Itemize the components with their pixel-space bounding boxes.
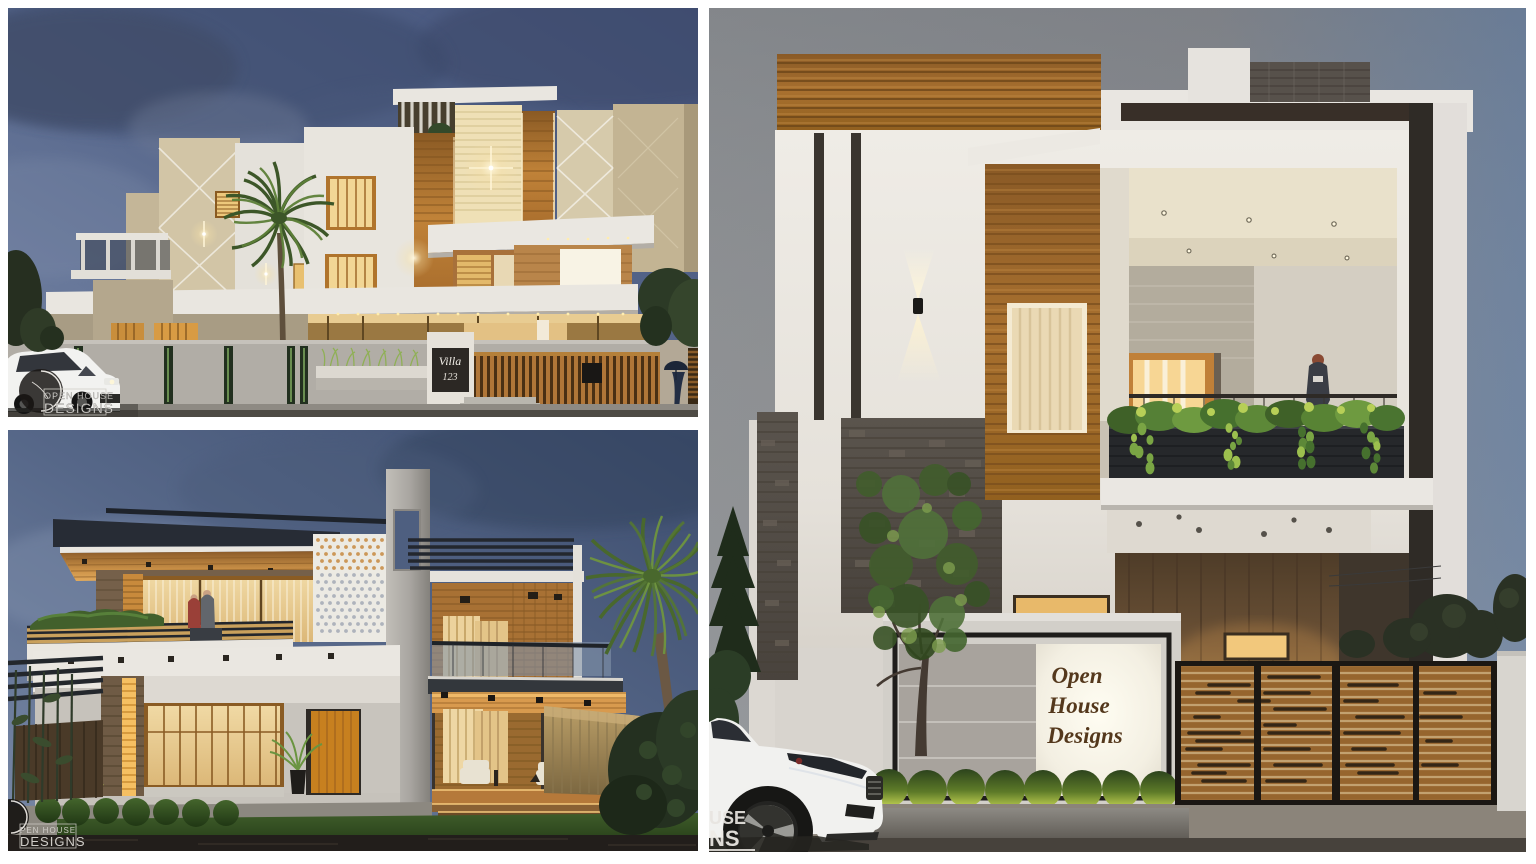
svg-text:123: 123 xyxy=(443,372,458,383)
svg-text:Designs: Designs xyxy=(1046,723,1122,748)
svg-text:Open: Open xyxy=(1051,663,1102,688)
svg-text:USE: USE xyxy=(709,808,746,828)
svg-text:House: House xyxy=(1047,693,1109,718)
svg-text:NS: NS xyxy=(709,826,740,851)
svg-text:DESIGNS: DESIGNS xyxy=(44,400,114,416)
svg-text:Villa: Villa xyxy=(439,354,461,368)
